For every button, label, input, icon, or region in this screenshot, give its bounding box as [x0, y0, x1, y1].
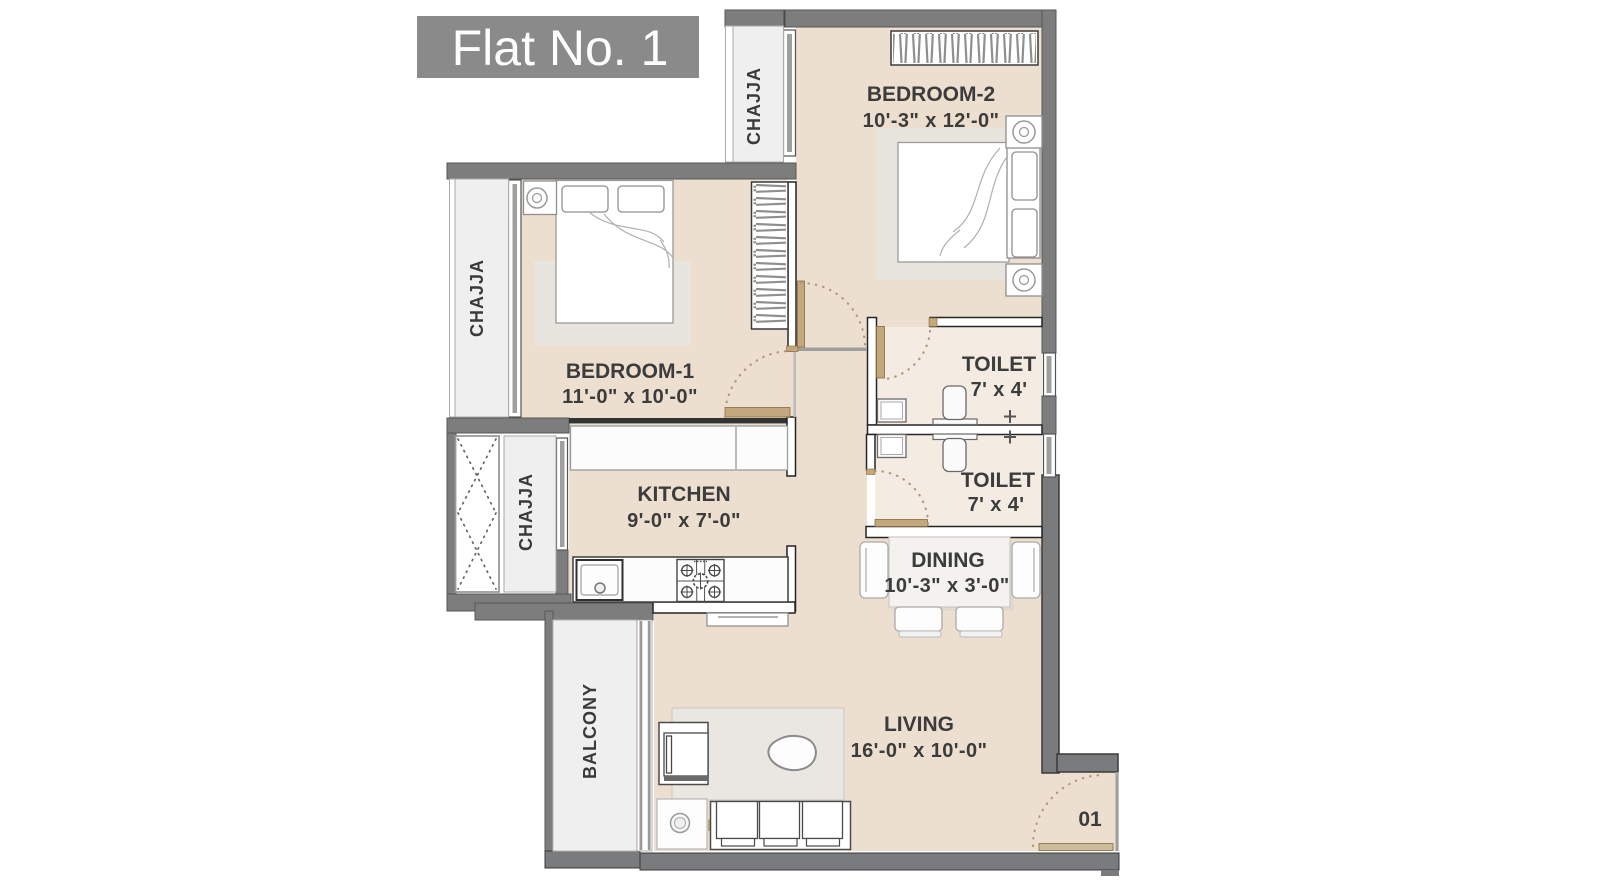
svg-text:16'-0" x 10'-0": 16'-0" x 10'-0": [851, 740, 988, 762]
svg-text:7' x 4': 7' x 4': [968, 494, 1025, 516]
svg-text:10'-3" x 12'-0": 10'-3" x 12'-0": [863, 110, 1000, 132]
svg-text:BEDROOM-2: BEDROOM-2: [867, 83, 995, 106]
svg-text:BALCONY: BALCONY: [580, 683, 600, 779]
svg-text:TOILET: TOILET: [962, 353, 1036, 376]
svg-text:CHAJJA: CHAJJA: [467, 259, 487, 337]
svg-text:Flat No. 1: Flat No. 1: [452, 20, 669, 76]
svg-text:LIVING: LIVING: [884, 713, 954, 736]
svg-text:10'-3" x 3'-0": 10'-3" x 3'-0": [884, 575, 1009, 597]
svg-text:BEDROOM-1: BEDROOM-1: [566, 360, 695, 383]
svg-text:01: 01: [1078, 808, 1102, 831]
svg-text:7' x 4': 7' x 4': [971, 379, 1028, 401]
svg-text:CHAJJA: CHAJJA: [744, 67, 764, 145]
svg-text:CHAJJA: CHAJJA: [516, 473, 536, 551]
svg-text:DINING: DINING: [911, 549, 985, 572]
svg-text:KITCHEN: KITCHEN: [637, 483, 730, 506]
svg-text:11'-0" x 10'-0": 11'-0" x 10'-0": [562, 386, 698, 408]
svg-text:9'-0" x 7'-0": 9'-0" x 7'-0": [627, 510, 741, 532]
svg-text:TOILET: TOILET: [961, 469, 1035, 492]
